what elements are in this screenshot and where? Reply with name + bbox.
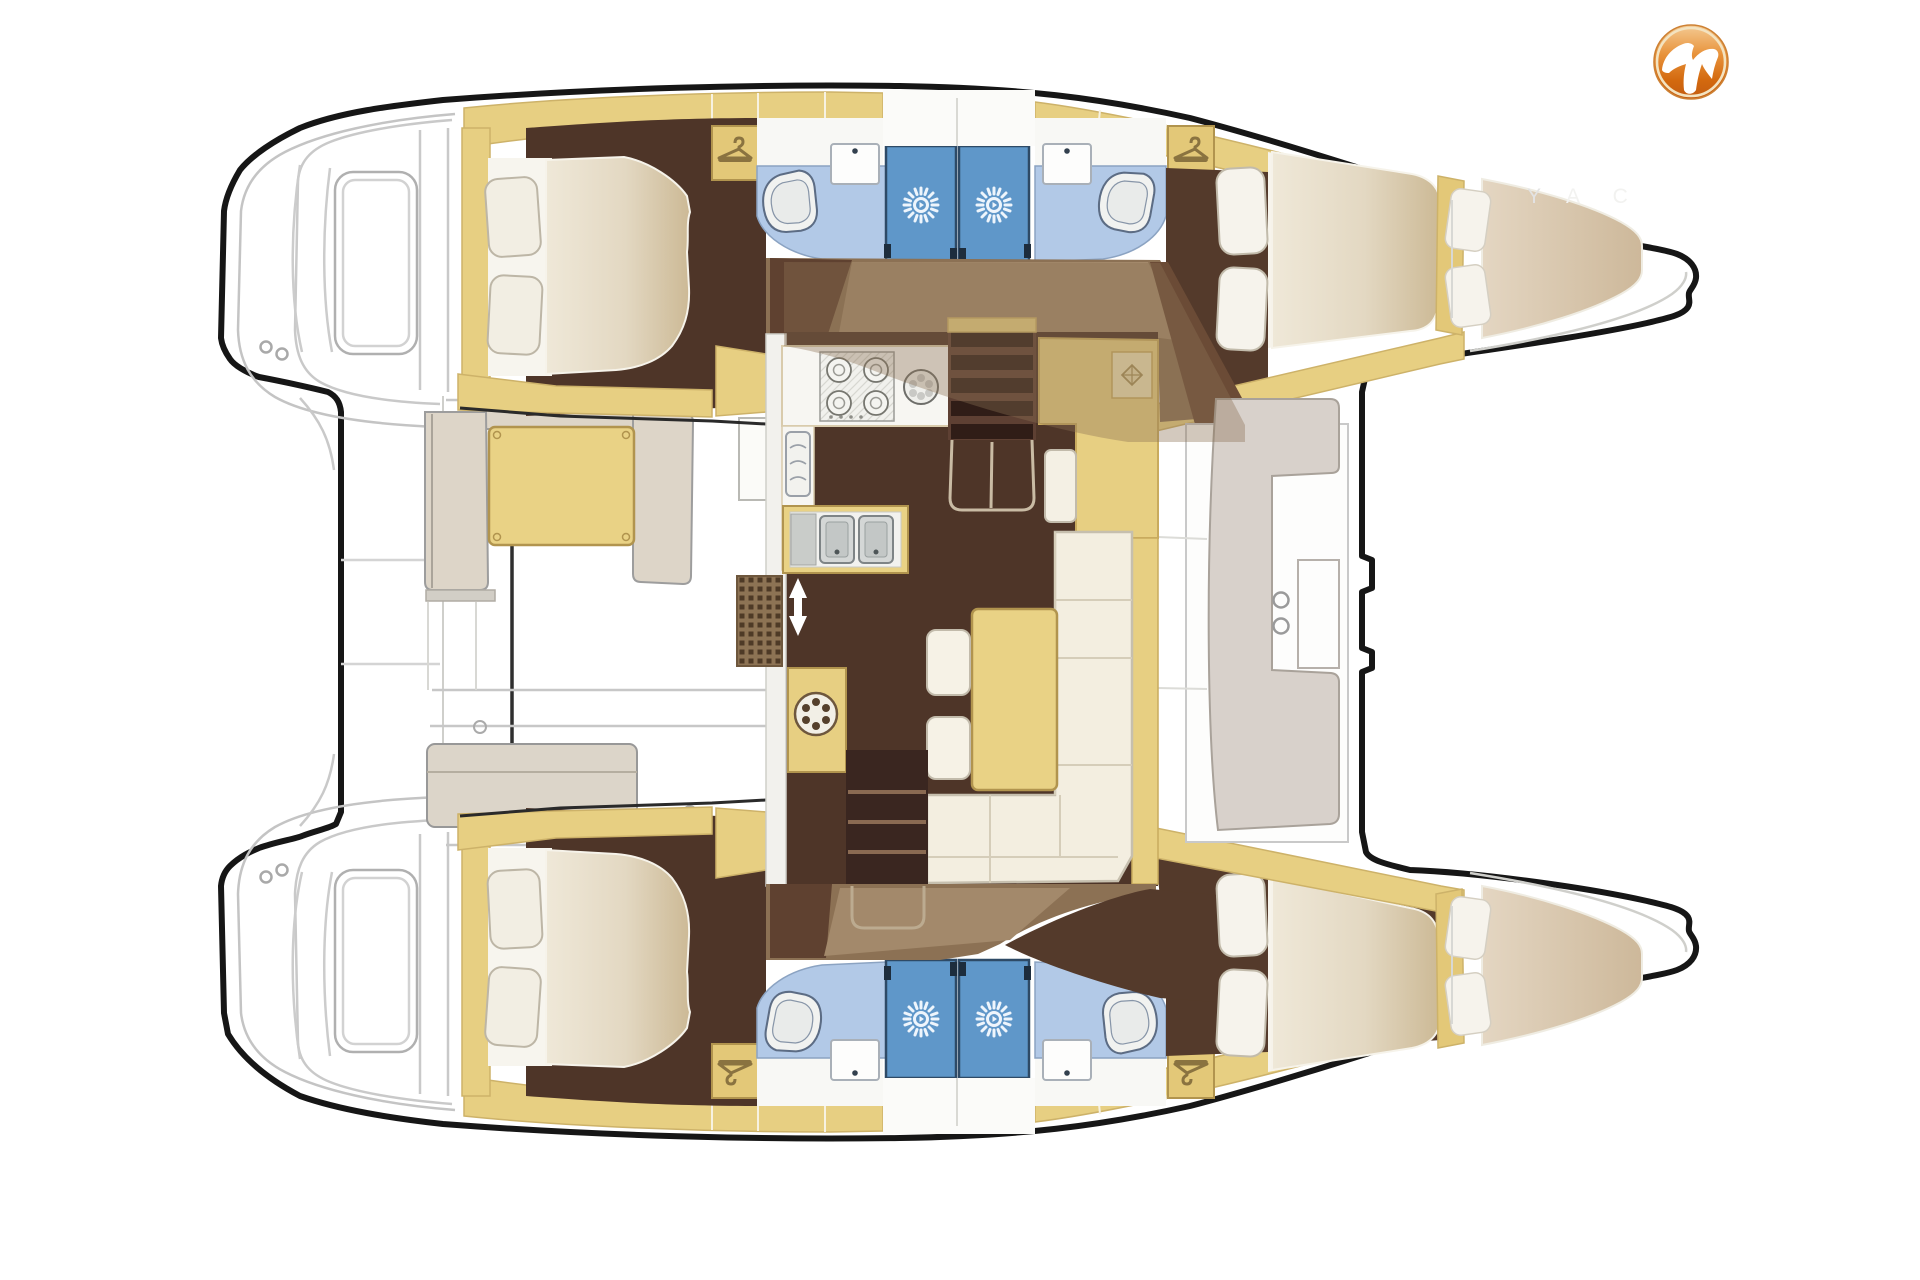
svg-text:Y: Y <box>1527 185 1555 208</box>
svg-text:A C: A C <box>1566 185 1642 208</box>
